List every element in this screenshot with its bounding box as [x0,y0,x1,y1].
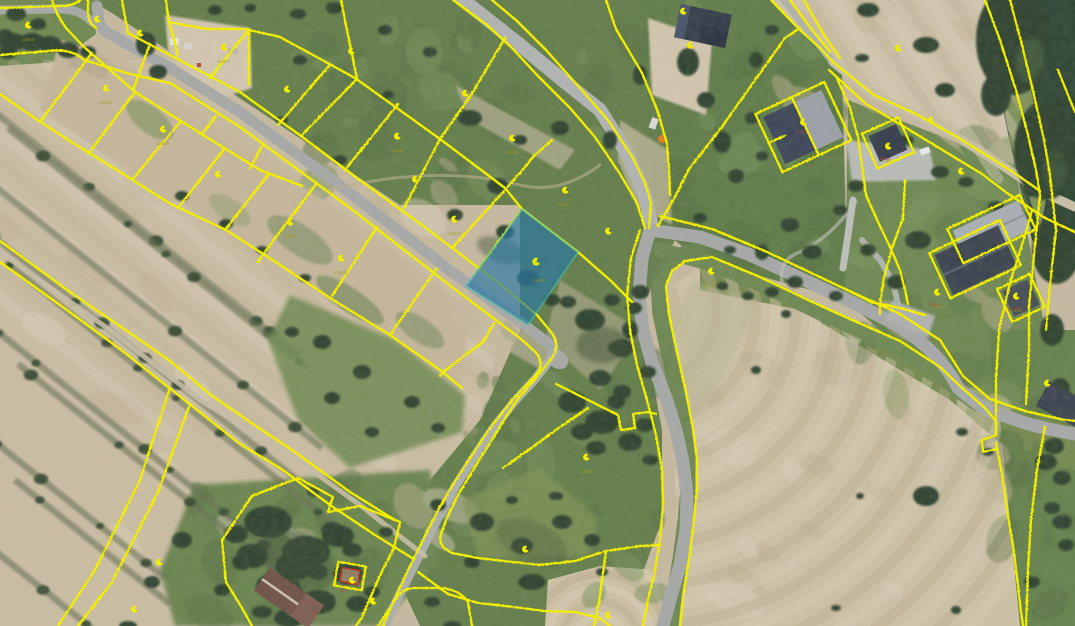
svg-text:1185/57: 1185/57 [531,278,547,283]
svg-text:1186/8: 1186/8 [156,141,170,146]
svg-text:1136/1: 1136/1 [928,302,942,307]
svg-text:1186/2: 1186/2 [704,283,718,288]
svg-text:1185/53: 1185/53 [579,469,595,474]
svg-text:1186/5: 1186/5 [21,37,35,42]
svg-text:1186/9: 1186/9 [283,234,297,239]
svg-text:1186/7: 1186/7 [99,100,113,105]
svg-text:1186/1: 1186/1 [217,59,231,64]
svg-text:1186/5: 1186/5 [390,148,404,153]
svg-text:st.89: st.89 [880,156,890,161]
svg-text:st.112: st.112 [795,129,807,134]
svg-text:1186/6: 1186/6 [505,150,519,155]
svg-text:1186/4: 1186/4 [518,561,532,566]
svg-text:526: 526 [340,588,348,593]
svg-text:1186/3: 1186/3 [447,231,461,236]
svg-text:1186/6: 1186/6 [334,270,348,275]
svg-text:1136/3: 1136/3 [1008,306,1022,311]
svg-text:1185/7: 1185/7 [558,202,572,207]
